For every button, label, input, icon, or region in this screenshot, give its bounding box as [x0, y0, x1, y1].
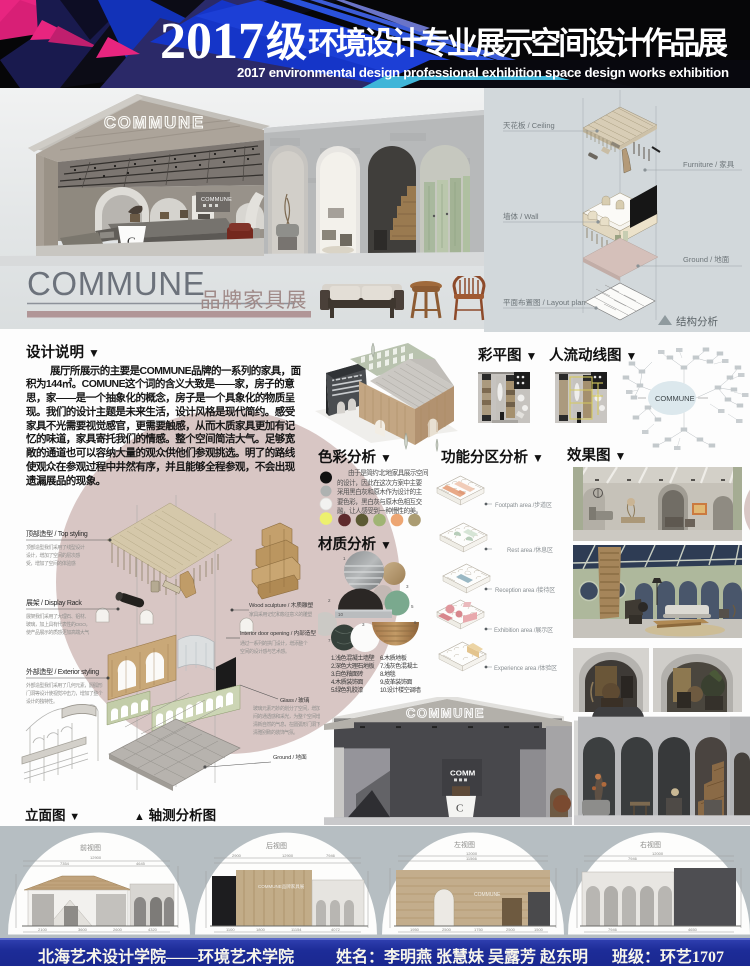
svg-text:7946: 7946: [608, 927, 618, 932]
svg-text:11566: 11566: [466, 856, 478, 861]
svg-text:7946: 7946: [326, 853, 336, 858]
svg-text:前视图: 前视图: [80, 843, 101, 852]
svg-text:使产品展示的质感更加高端大气: 使产品展示的质感更加高端大气: [26, 629, 89, 636]
svg-text:顶部造型 / Top styling: 顶部造型 / Top styling: [26, 529, 88, 538]
svg-text:2900: 2900: [232, 853, 242, 858]
svg-text:清雅别致的装饰气氛。: 清雅别致的装饰气氛。: [253, 729, 298, 736]
svg-text:玻璃元素巧妙的划分了空间，增加了空: 玻璃元素巧妙的划分了空间，增加了空: [253, 705, 320, 712]
svg-text:受，增加了空间的体验感: 受，增加了空间的体验感: [26, 560, 76, 567]
svg-text:设计，增加了空间的层次感: 设计，增加了空间的层次感: [26, 552, 80, 559]
svg-text:11154: 11154: [291, 927, 302, 932]
svg-text:COMM: COMM: [450, 769, 476, 778]
svg-text:外部造型 / Exterior styling: 外部造型 / Exterior styling: [26, 667, 99, 676]
svg-text:2017 environmental design prof: 2017 environmental design professional e…: [237, 65, 729, 80]
svg-text:4650: 4650: [688, 927, 698, 932]
svg-text:2017: 2017: [160, 13, 264, 70]
svg-text:结构分析: 结构分析: [676, 315, 718, 328]
svg-text:外部造型我们采用了几何元素，圆弧形: 外部造型我们采用了几何元素，圆弧形: [26, 682, 103, 689]
svg-text:间的通透感和采光，为整个空间增添了: 间的通透感和采光，为整个空间增添了: [253, 713, 320, 720]
svg-text:7: 7: [328, 638, 331, 643]
svg-text:4645: 4645: [136, 861, 146, 866]
svg-text:后视图: 后视图: [266, 841, 287, 850]
svg-text:Glass / 玻璃: Glass / 玻璃: [280, 696, 310, 704]
svg-text:顶部造型我们采用了线型设计: 顶部造型我们采用了线型设计: [26, 544, 85, 551]
svg-text:3600: 3600: [78, 927, 88, 932]
svg-text:环境设计专业展示空间设计作品展: 环境设计专业展示空间设计作品展: [308, 26, 728, 61]
svg-text:4072: 4072: [331, 927, 341, 932]
svg-text:左视图: 左视图: [454, 840, 475, 849]
svg-text:1750: 1750: [474, 927, 484, 932]
svg-text:COMMUNE: COMMUNE: [27, 265, 205, 302]
svg-text:通过一系列的拱门设计，增添整个: 通过一系列的拱门设计，增添整个: [240, 640, 308, 647]
svg-text:Footpath area /步道区: Footpath area /步道区: [495, 501, 552, 509]
svg-text:玻璃，加上具有代表性的OGO，: 玻璃，加上具有代表性的OGO，: [26, 621, 90, 628]
svg-text:设计的独特性。: 设计的独特性。: [26, 698, 57, 705]
svg-text:1100: 1100: [226, 927, 235, 932]
svg-text:Experience area /体验区: Experience area /体验区: [494, 664, 557, 672]
svg-text:4320: 4320: [148, 927, 158, 932]
svg-text:COMMUNE: COMMUNE: [474, 892, 501, 898]
svg-text:Wood sculpture / 木质雕塑: Wood sculpture / 木质雕塑: [249, 601, 313, 609]
svg-text:Furniture / 家具: Furniture / 家具: [683, 159, 735, 169]
svg-text:空间的设计感与艺术感。: 空间的设计感与艺术感。: [240, 648, 289, 655]
svg-text:COMMUNE: COMMUNE: [201, 197, 232, 203]
svg-text:COMMUNE品牌家具展: COMMUNE品牌家具展: [258, 883, 305, 890]
svg-text:2100: 2100: [38, 927, 48, 932]
svg-text:1: 1: [343, 556, 346, 561]
svg-text:12900: 12900: [90, 855, 102, 860]
svg-text:Reception area /接待区: Reception area /接待区: [495, 586, 555, 594]
svg-text:右视图: 右视图: [640, 840, 661, 849]
svg-text:COMMUNE: COMMUNE: [406, 706, 485, 721]
svg-text:展架我们采用了大理石、铝材、: 展架我们采用了大理石、铝材、: [26, 613, 89, 620]
svg-text:COMMUNE: COMMUNE: [104, 114, 205, 132]
svg-text:12000: 12000: [652, 851, 664, 856]
svg-text:2500: 2500: [442, 927, 452, 932]
svg-text:2600: 2600: [113, 927, 123, 932]
svg-text:1950: 1950: [410, 927, 420, 932]
svg-text:7354: 7354: [60, 861, 70, 866]
svg-text:清新自然的气息，在圆弧形门洞下更为: 清新自然的气息，在圆弧形门洞下更为: [253, 721, 320, 728]
svg-text:12900: 12900: [282, 853, 294, 858]
svg-text:级: 级: [266, 19, 307, 65]
svg-text:2: 2: [328, 598, 331, 603]
svg-text:1500: 1500: [534, 927, 544, 932]
svg-text:Rest area /休息区: Rest area /休息区: [507, 546, 553, 554]
svg-text:C: C: [456, 803, 463, 815]
svg-text:展架 / Display Rack: 展架 / Display Rack: [26, 599, 82, 607]
svg-text:Exhibition area /展示区: Exhibition area /展示区: [494, 627, 553, 634]
svg-text:10: 10: [338, 612, 344, 617]
svg-text:Ground / 地面: Ground / 地面: [273, 753, 307, 761]
svg-text:1800: 1800: [256, 927, 266, 932]
svg-text:品牌家具展: 品牌家具展: [200, 289, 308, 312]
svg-text:家具采用记忆和象征意义的雕塑: 家具采用记忆和象征意义的雕塑: [249, 611, 312, 618]
svg-text:门洞等设计使视觉冲击力，增加了整个: 门洞等设计使视觉冲击力，增加了整个: [26, 690, 103, 697]
svg-text:Interior door opening / 内部造型: Interior door opening / 内部造型: [240, 629, 316, 637]
svg-text:COMMUNE: COMMUNE: [655, 394, 695, 403]
svg-text:2500: 2500: [506, 927, 516, 932]
svg-text:天花板 / Ceiling: 天花板 / Ceiling: [503, 120, 555, 130]
svg-text:Ground / 地面: Ground / 地面: [683, 254, 730, 264]
svg-text:墙体 / Wall: 墙体 / Wall: [503, 211, 539, 221]
svg-text:7946: 7946: [628, 856, 638, 861]
svg-text:平面布置图 / Layout plan: 平面布置图 / Layout plan: [503, 297, 586, 307]
